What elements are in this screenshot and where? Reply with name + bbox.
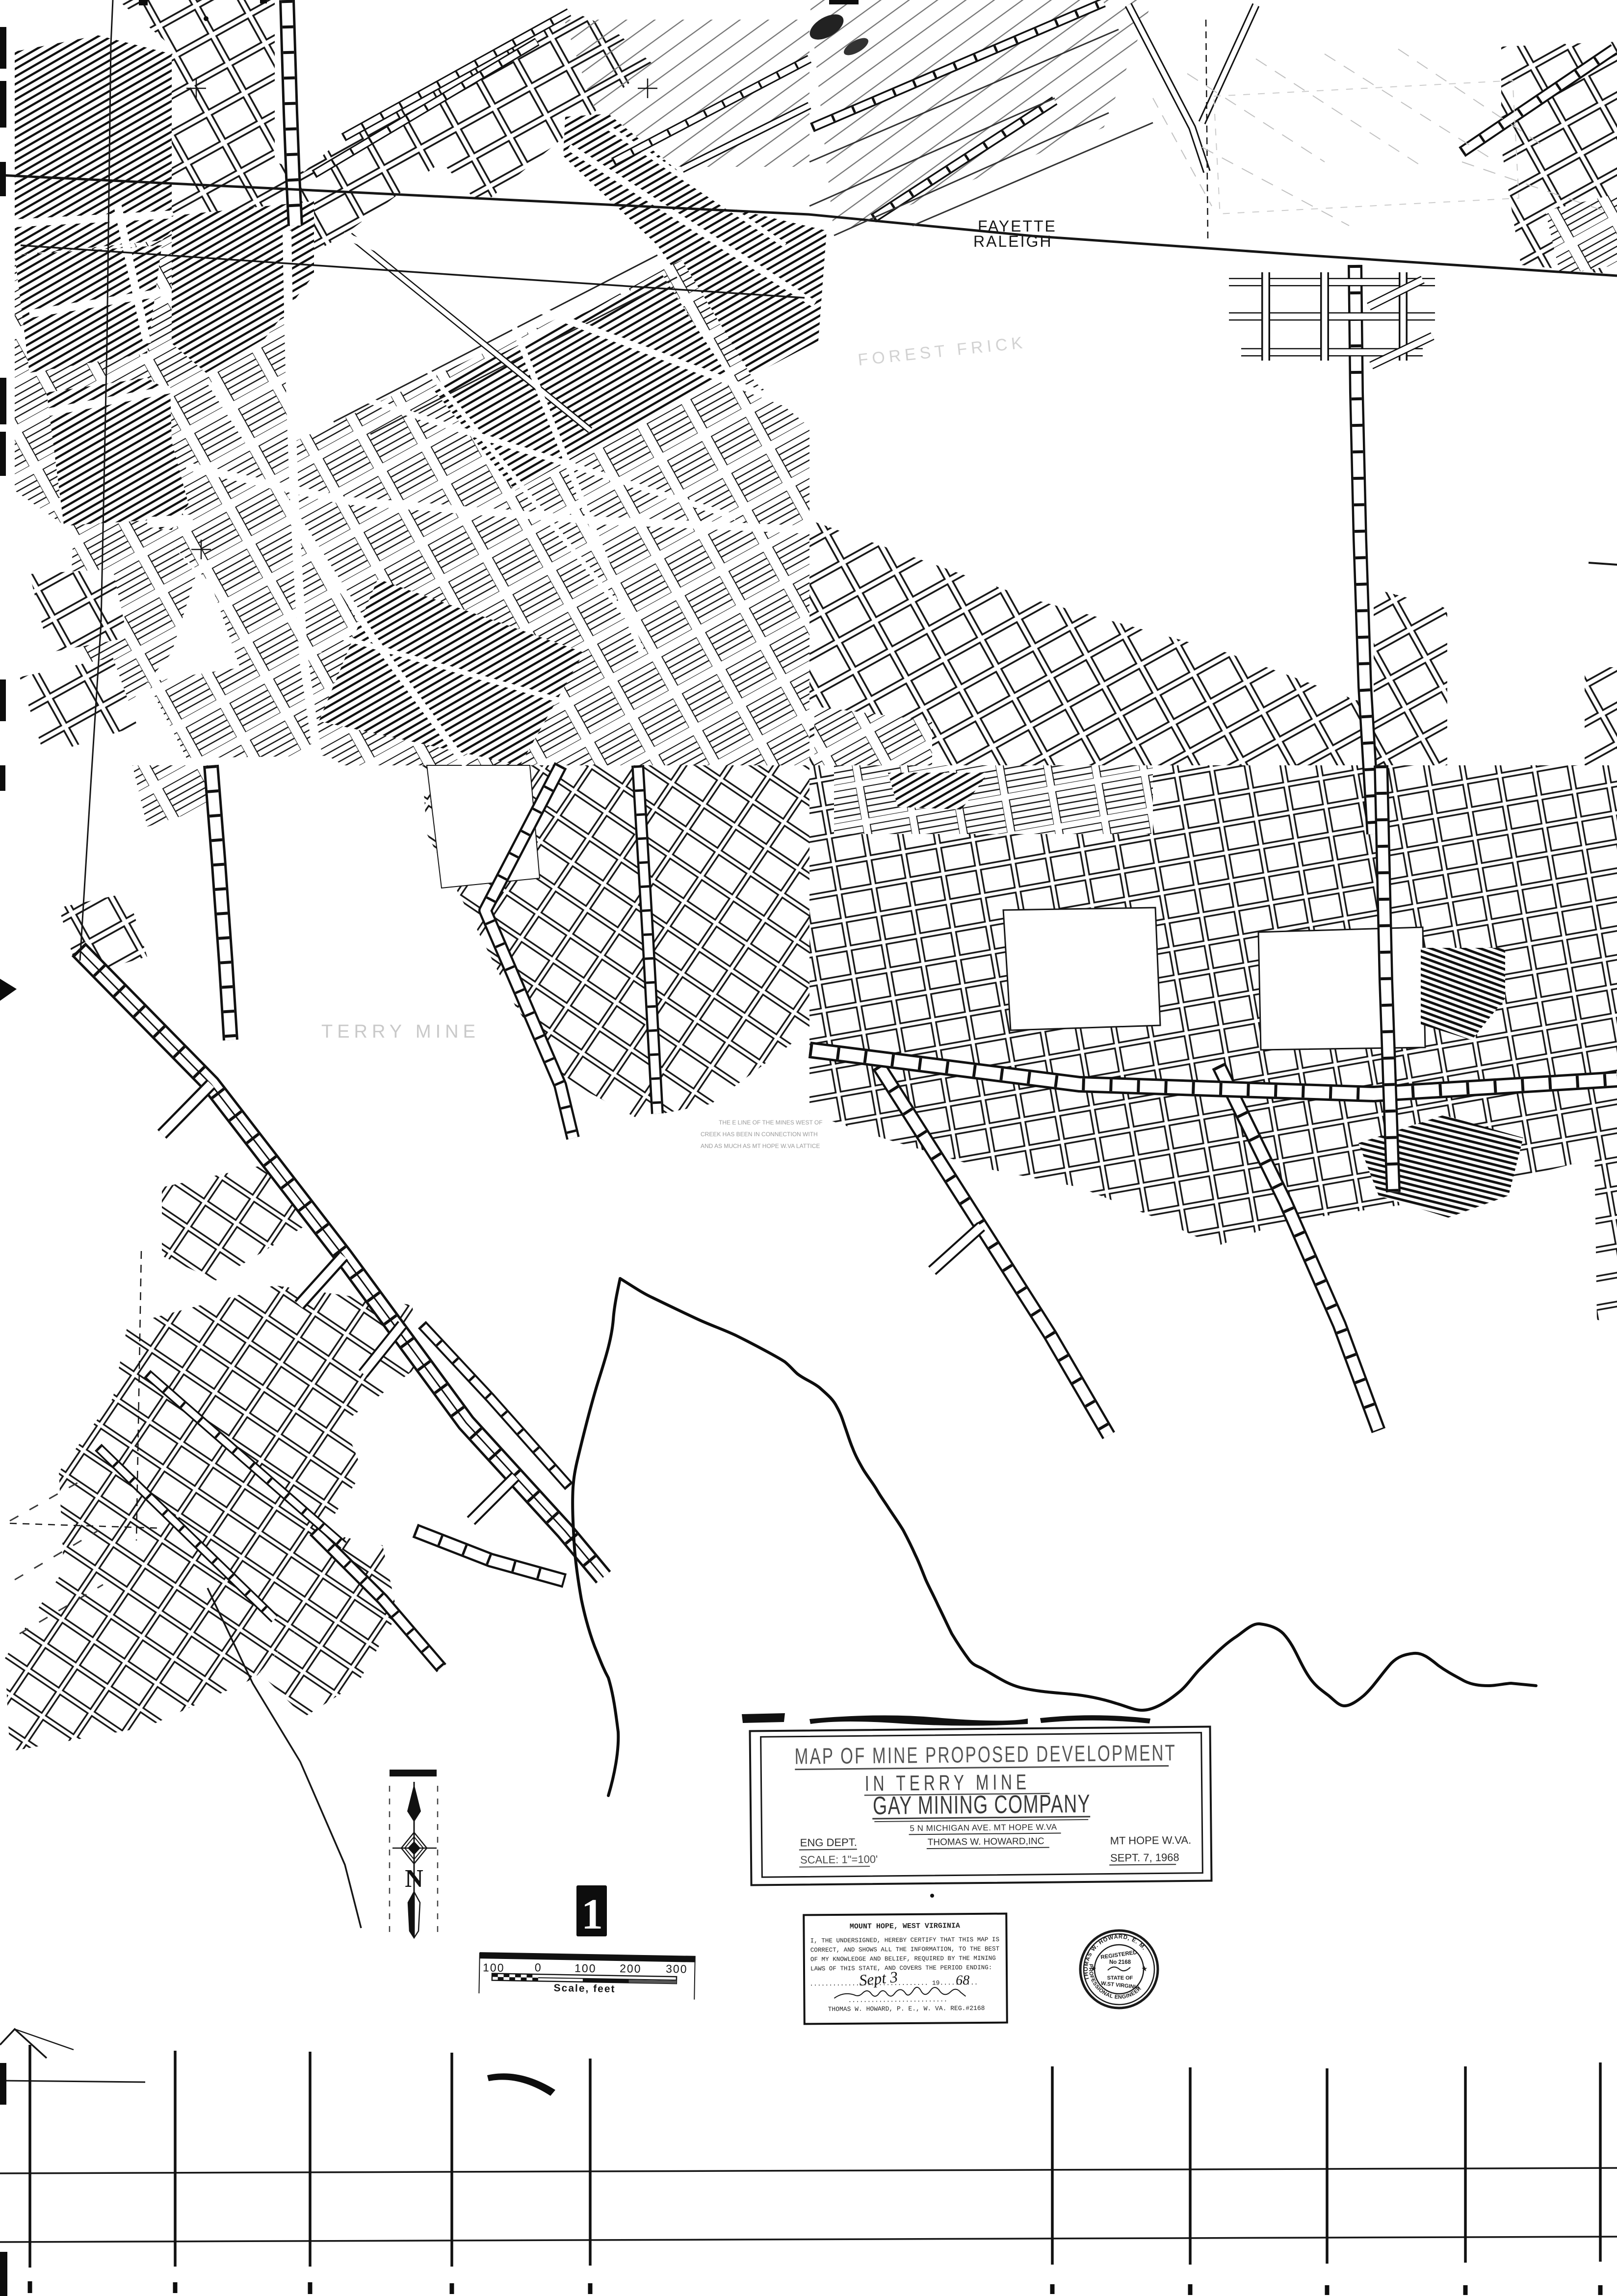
svg-text:SCALE: 1"=100': SCALE: 1"=100' — [800, 1853, 878, 1866]
svg-text:THOMAS W. HOWARD,INC: THOMAS W. HOWARD,INC — [928, 1836, 1044, 1848]
svg-text:OF MY KNOWLEDGE AND BELIEF, RE: OF MY KNOWLEDGE AND BELIEF, REQUIRED BY … — [810, 1955, 996, 1963]
svg-text:Sept 3: Sept 3 — [858, 1968, 898, 1989]
svg-text:THE E LINE OF THE MINES WEST O: THE E LINE OF THE MINES WEST OF — [719, 1119, 823, 1126]
svg-text:THOMAS W. HOWARD, P. E., W. VA: THOMAS W. HOWARD, P. E., W. VA. REG.#216… — [828, 2005, 985, 2013]
svg-text:★: ★ — [1141, 1965, 1148, 1973]
svg-text:N: N — [405, 1865, 423, 1893]
svg-text:Scale, feet: Scale, feet — [553, 1983, 615, 1995]
svg-text:..........................: .......................... — [848, 1996, 947, 2004]
svg-text:I, THE UNDERSIGNED, HEREBY CER: I, THE UNDERSIGNED, HEREBY CERTIFY THAT … — [810, 1936, 1000, 1945]
svg-text:100: 100 — [483, 1961, 505, 1974]
svg-text:No 2168: No 2168 — [1109, 1959, 1131, 1965]
svg-text:200: 200 — [620, 1962, 642, 1975]
svg-text:ENG DEPT.: ENG DEPT. — [800, 1836, 857, 1849]
svg-text:AND AS MUCH AS MT HOPE W.VA LA: AND AS MUCH AS MT HOPE W.VA LATTICE — [701, 1143, 820, 1149]
svg-text:CREEK HAS BEEN IN CONNECTION W: CREEK HAS BEEN IN CONNECTION WITH — [701, 1131, 818, 1138]
svg-text:100: 100 — [574, 1961, 597, 1975]
svg-text:1: 1 — [581, 1891, 603, 1938]
svg-text:TERRY MINE: TERRY MINE — [321, 1021, 480, 1042]
svg-text:CORRECT, AND SHOWS ALL THE INF: CORRECT, AND SHOWS ALL THE INFORMATION, … — [810, 1946, 1000, 1954]
svg-text:SEPT. 7, 1968: SEPT. 7, 1968 — [1110, 1851, 1179, 1864]
svg-text:★: ★ — [1090, 1965, 1096, 1973]
svg-text:MOUNT HOPE, WEST VIRGINIA: MOUNT HOPE, WEST VIRGINIA — [850, 1922, 960, 1931]
svg-text:5 N MICHIGAN AVE. MT HOPE W.VA: 5 N MICHIGAN AVE. MT HOPE W.VA — [910, 1823, 1057, 1833]
svg-text:300: 300 — [666, 1962, 688, 1976]
svg-text:MT HOPE W.VA.: MT HOPE W.VA. — [1110, 1834, 1192, 1847]
svg-text:MAP OF MINE PROPOSED DEVELOPME: MAP OF MINE PROPOSED DEVELOPMENT — [795, 1741, 1177, 1769]
svg-text:STATE OF: STATE OF — [1107, 1975, 1133, 1981]
svg-text:RALEIGH: RALEIGH — [973, 233, 1052, 250]
svg-text:LAWS OF THIS STATE, AND COVERS: LAWS OF THIS STATE, AND COVERS THE PERIO… — [810, 1964, 992, 1973]
svg-text:GAY MINING COMPANY: GAY MINING COMPANY — [873, 1789, 1091, 1820]
svg-text:0: 0 — [535, 1961, 542, 1974]
svg-text:68: 68 — [956, 1973, 969, 1988]
